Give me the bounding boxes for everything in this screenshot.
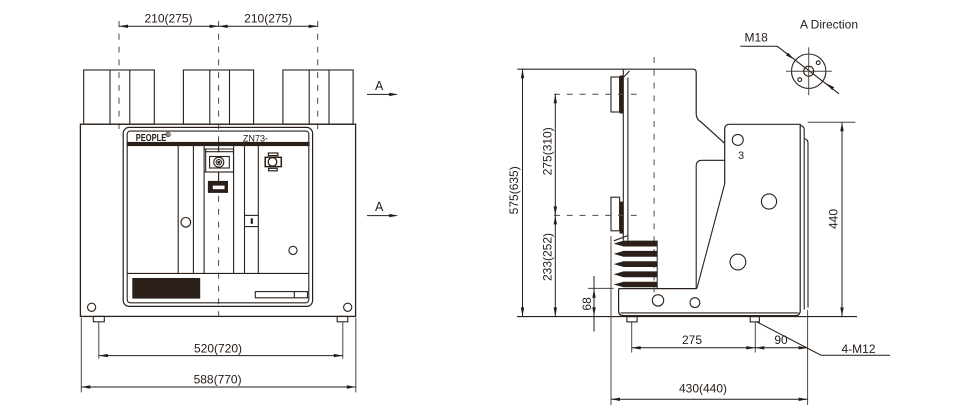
svg-text:A Direction: A Direction	[800, 17, 858, 31]
svg-text:3: 3	[738, 150, 744, 162]
svg-text:R: R	[167, 132, 170, 137]
svg-text:233(252): 233(252)	[540, 233, 554, 281]
svg-text:430(440): 430(440)	[679, 382, 727, 396]
svg-text:575(635): 575(635)	[507, 166, 521, 214]
svg-text:A: A	[375, 200, 384, 214]
svg-text:90: 90	[774, 333, 788, 347]
svg-text:210(275): 210(275)	[244, 12, 292, 26]
svg-text:440: 440	[827, 209, 841, 229]
svg-text:4-M12: 4-M12	[842, 342, 876, 356]
svg-text:210(275): 210(275)	[144, 12, 192, 26]
svg-text:A: A	[375, 79, 384, 93]
svg-text:275: 275	[682, 333, 702, 347]
svg-text:588(770): 588(770)	[194, 373, 242, 387]
svg-text:M18: M18	[745, 31, 769, 45]
svg-text:275(310): 275(310)	[540, 127, 554, 175]
svg-text:520(720): 520(720)	[194, 341, 242, 355]
svg-text:68: 68	[580, 297, 594, 311]
